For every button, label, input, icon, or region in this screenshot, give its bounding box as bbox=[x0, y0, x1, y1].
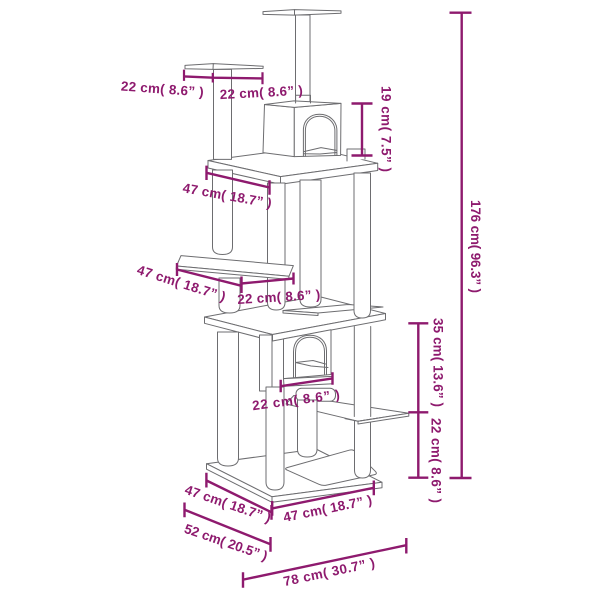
svg-text:19 cm( 7.5” ): 19 cm( 7.5” ) bbox=[379, 86, 394, 172]
svg-text:176 cm( 96.3” ): 176 cm( 96.3” ) bbox=[468, 200, 483, 293]
svg-text:22 cm( 8.6” ): 22 cm( 8.6” ) bbox=[429, 418, 444, 503]
svg-text:35 cm( 13.6” ): 35 cm( 13.6” ) bbox=[431, 318, 446, 407]
